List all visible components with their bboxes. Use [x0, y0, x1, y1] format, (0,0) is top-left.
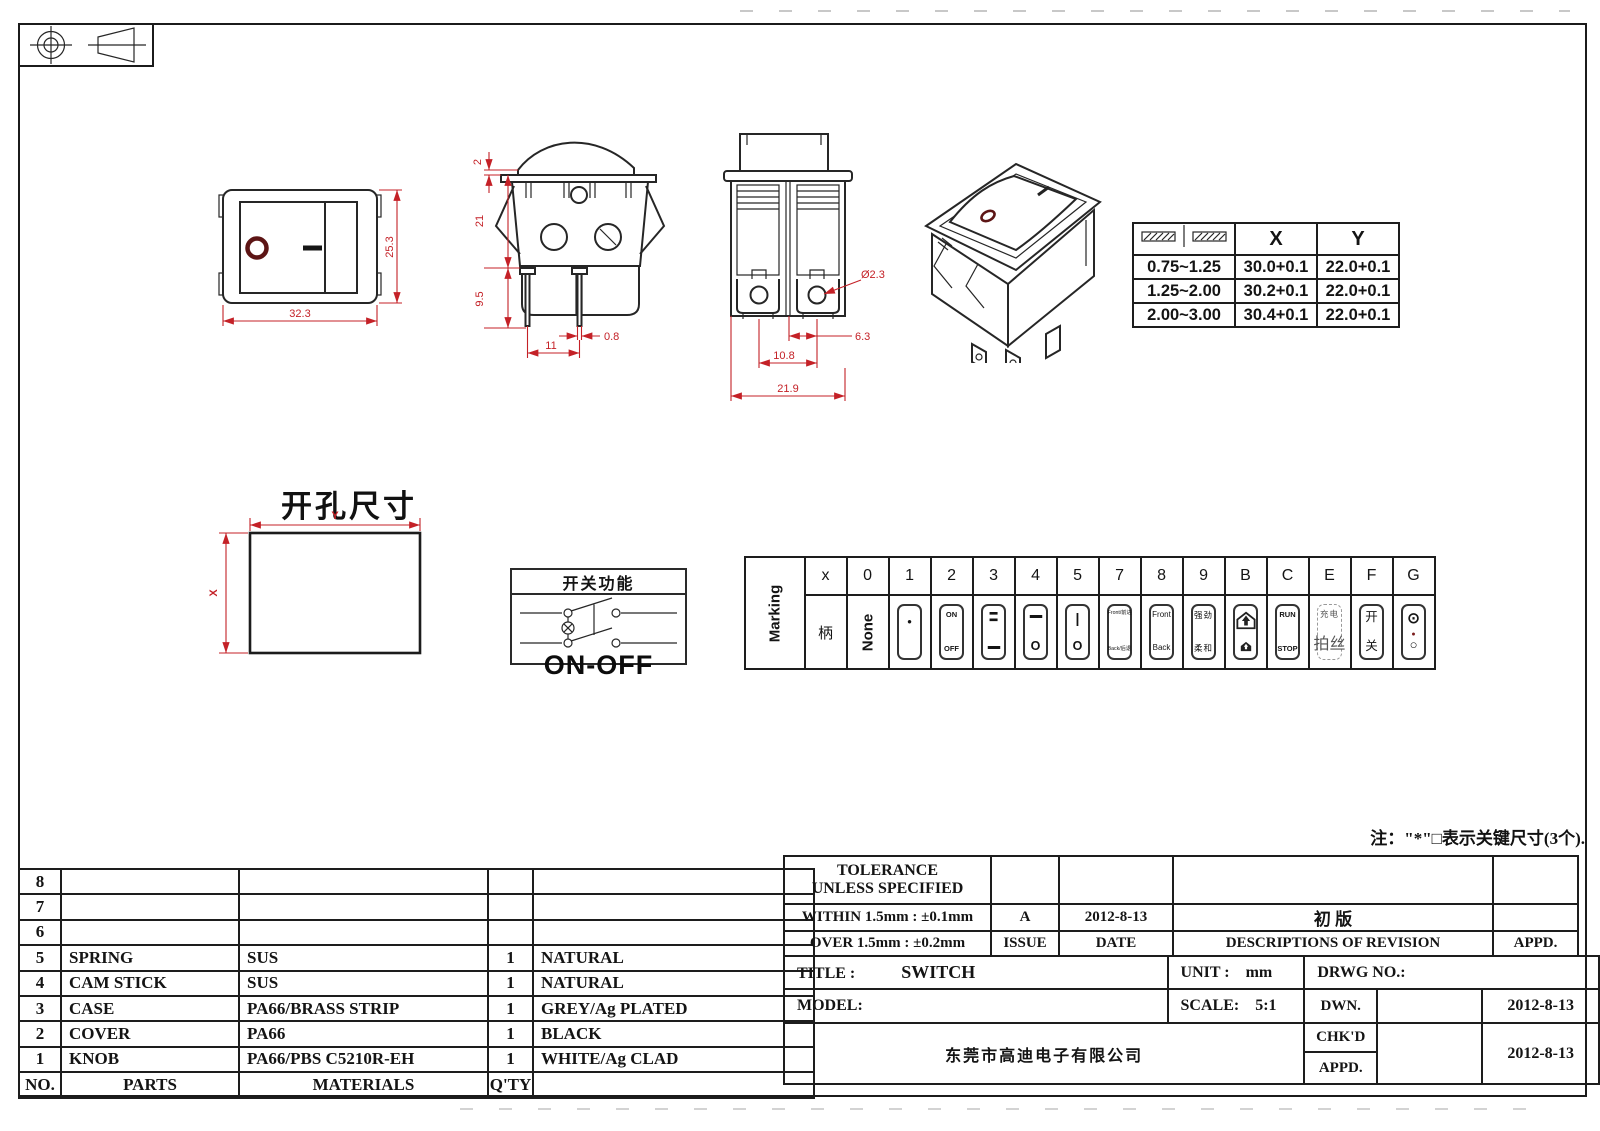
drawing-sheet: 32.3 25.3 2 21 9.5 — [0, 0, 1600, 1131]
table-row: 2COVER PA661BLACK — [19, 1021, 814, 1046]
keycap-strong-soft: 强劲柔和 — [1191, 604, 1216, 660]
function-caption: ON-OFF — [510, 650, 687, 681]
iso-pin — [1006, 350, 1020, 363]
dim-terminal-pitch: 10.8 — [773, 350, 794, 362]
keycap-double-bar: =▬ — [981, 604, 1006, 660]
rocker-top — [740, 134, 828, 171]
table-row: 7 — [19, 894, 814, 919]
keycap-kai-guan: 开关 — [1359, 604, 1384, 660]
truncated-cone-icon — [86, 25, 148, 65]
dim-height: 25.3 — [384, 236, 396, 257]
issue-date: 2012-8-13 — [1059, 904, 1173, 931]
date-label: DATE — [1059, 931, 1173, 956]
rocker — [518, 143, 634, 175]
switch-body — [512, 182, 648, 266]
dim-hole-offset: 6.3 — [855, 331, 870, 343]
dim-hole-dia: Ø2.3 — [861, 269, 885, 281]
on-symbol — [303, 246, 322, 251]
bom-header-row: NO. PARTS MATERIALS Q'TY — [19, 1072, 814, 1097]
issue-value: A — [991, 904, 1059, 931]
keycap-bar-o: ▬O — [1023, 604, 1048, 660]
scale-cell: SCALE:5:1 — [1168, 989, 1305, 1023]
keycap-on-off: ONOFF — [939, 604, 964, 660]
keycap-dot: • — [897, 604, 922, 660]
marking-cell-none: None — [859, 612, 876, 652]
tolerance-over: OVER 1.5mm : ±0.2mm — [784, 931, 991, 956]
cutout-x-label: X — [208, 589, 220, 597]
dim-pin-pitch: 11 — [545, 340, 556, 352]
unit-cell: UNIT :mm — [1168, 956, 1305, 989]
table-row: 0.75~1.2530.0+0.122.0+0.1 — [1133, 255, 1399, 279]
isometric-view — [888, 138, 1123, 363]
terminal-pin — [578, 274, 582, 326]
chkd-date: 2012-8-13 — [1482, 1023, 1599, 1084]
bom-table: 8 7 6 5SPRING SUS1NATURAL 4CAM STICK SUS… — [18, 868, 815, 1099]
table-row: 8 — [19, 869, 814, 894]
marking-cell-handle: 柄 — [805, 595, 847, 669]
chkd-signature — [1377, 1023, 1482, 1084]
keycap-i-o: |O — [1065, 604, 1090, 660]
dim-width: 32.3 — [289, 308, 310, 320]
keycap-power-symbols: ⊙ ●○ — [1401, 604, 1426, 660]
title-block: TITLE : SWITCH UNIT :mm DRWG NO.: MODEL:… — [783, 955, 1600, 1085]
circle-crosshair-icon — [25, 25, 77, 65]
revision-appd-label: APPD. — [1493, 931, 1578, 956]
table-row: 3CASE PA66/BRASS STRIP1GREY/Ag PLATED — [19, 996, 814, 1021]
pin-hole-right — [809, 287, 826, 304]
company-name: 东莞市高迪电子有限公司 — [784, 1023, 1304, 1084]
dim-pin-length: 9.5 — [474, 291, 486, 306]
projection-symbol-box — [18, 23, 154, 67]
model-cell: MODEL: — [784, 989, 1168, 1023]
terminal-block-right — [797, 279, 839, 313]
panel-col-y: Y — [1317, 223, 1399, 255]
revision-description: 初 版 — [1173, 904, 1493, 931]
revision-table: TOLERANCE UNLESS SPECIFIED WITHIN 1.5mm … — [783, 855, 1579, 957]
front-view: 32.3 25.3 — [190, 155, 425, 385]
scan-artifact-top — [740, 10, 1570, 12]
cutout-y-label: Y — [331, 510, 339, 522]
marking-table: Marking x 0 1 2 3 4 5 7 8 9 B C E F G 柄 … — [744, 556, 1436, 670]
dim-body-height: 21 — [474, 215, 486, 227]
boost-arrow-house-small-icon — [1240, 641, 1252, 652]
appd-label: APPD. — [1304, 1052, 1377, 1084]
key-dimension-note: 注："*"□表示关键尺寸(3个). — [1235, 824, 1585, 849]
terminal-block-left — [737, 279, 779, 313]
chkd-label: CHK'D — [1304, 1023, 1377, 1052]
terminal-pin — [526, 274, 530, 326]
boost-arrow-house-icon — [1236, 611, 1256, 630]
keycap-charge: 充电拍丝 — [1317, 604, 1342, 660]
table-row: 1.25~2.0030.2+0.122.0+0.1 — [1133, 279, 1399, 303]
marking-side-label: Marking — [766, 584, 783, 642]
keycap-front-back-cn: Front/前进Back/后退 — [1107, 604, 1132, 660]
end-view: Ø2.3 6.3 10.8 21.9 — [668, 98, 908, 428]
tolerance-header: TOLERANCE UNLESS SPECIFIED — [784, 856, 991, 904]
issue-label: ISSUE — [991, 931, 1059, 956]
keycap-run-stop: RUNSTOP — [1275, 604, 1300, 660]
table-row: 5SPRING SUS1NATURAL — [19, 945, 814, 970]
table-row: 6 — [19, 920, 814, 945]
pin-hole-left — [751, 287, 768, 304]
switch-body-end — [731, 181, 845, 316]
dim-pin-width: 0.8 — [604, 331, 619, 343]
keycap-boost — [1233, 604, 1258, 660]
cutout-diagram: Y X — [205, 505, 440, 675]
dwn-signature — [1377, 989, 1482, 1023]
table-row: 4CAM STICK SUS1NATURAL — [19, 971, 814, 996]
scan-artifact-bottom — [460, 1108, 1540, 1110]
panel-col-x: X — [1235, 223, 1317, 255]
drwg-no-cell: DRWG NO.: — [1304, 956, 1599, 989]
revision-label: DESCRIPTIONS OF REVISION — [1173, 931, 1493, 956]
tolerance-within: WITHIN 1.5mm : ±0.1mm — [784, 904, 991, 931]
iso-pin — [1046, 326, 1060, 358]
table-row: 2.00~3.0030.4+0.122.0+0.1 — [1133, 303, 1399, 327]
drawing-title: SWITCH — [901, 962, 975, 982]
panel-thickness-table: X Y 0.75~1.2530.0+0.122.0+0.1 1.25~2.003… — [1132, 222, 1400, 328]
keycap-front-back: FrontBack — [1149, 604, 1174, 660]
side-view: 2 21 9.5 0.8 11 — [438, 118, 683, 383]
dim-rocker-lip: 2 — [472, 159, 484, 165]
table-row: 1KNOB PA66/PBS C5210R-EH1WHITE/Ag CLAD — [19, 1047, 814, 1072]
title-row: TITLE : SWITCH — [784, 956, 1168, 989]
dwn-date: 2012-8-13 — [1482, 989, 1599, 1023]
dim-body-width: 21.9 — [777, 383, 798, 395]
lamp-symbol-icon — [562, 622, 574, 634]
switch-function-title: 开关功能 — [512, 570, 685, 595]
dwn-label: DWN. — [1304, 989, 1377, 1023]
cutout-rect — [250, 533, 420, 653]
panel-thickness-icon — [1138, 224, 1230, 248]
